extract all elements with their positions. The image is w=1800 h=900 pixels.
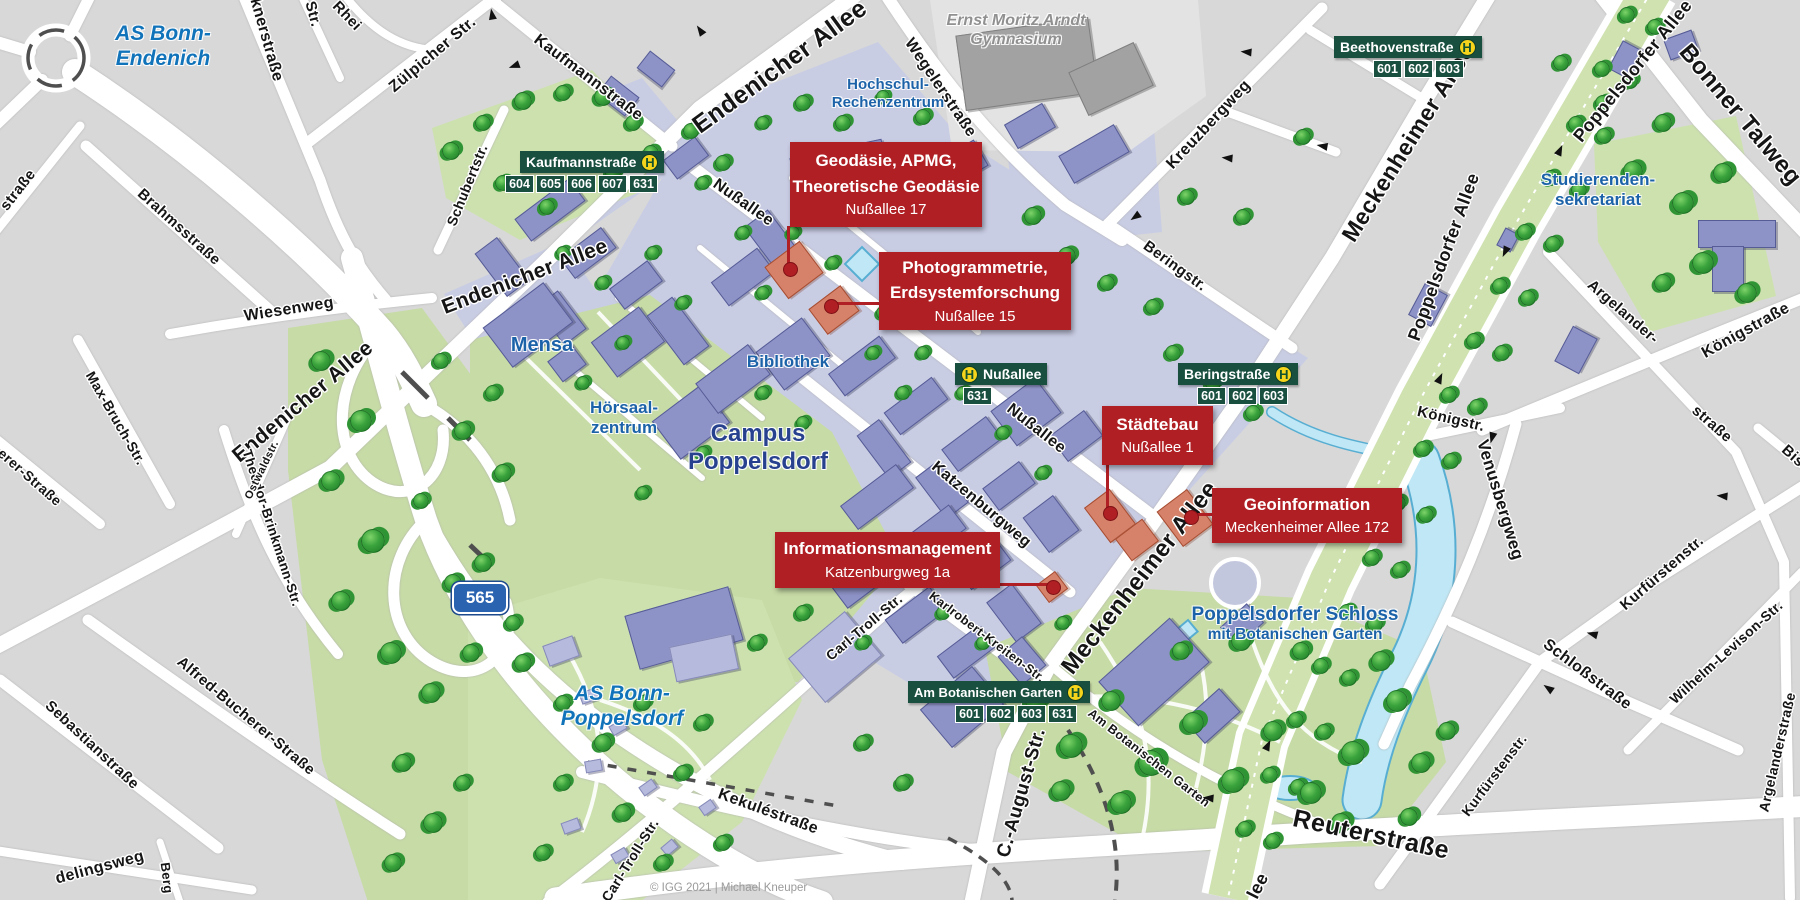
copyright-text: © IGG 2021 | Michael Kneuper: [650, 882, 807, 894]
map-base: [0, 0, 1800, 900]
schloss-courtyard: [1211, 559, 1259, 607]
campus-map: Endenicher AlleeEndenicher AlleeEndenich…: [0, 0, 1800, 900]
motorway-565-badge: 565: [452, 582, 508, 614]
